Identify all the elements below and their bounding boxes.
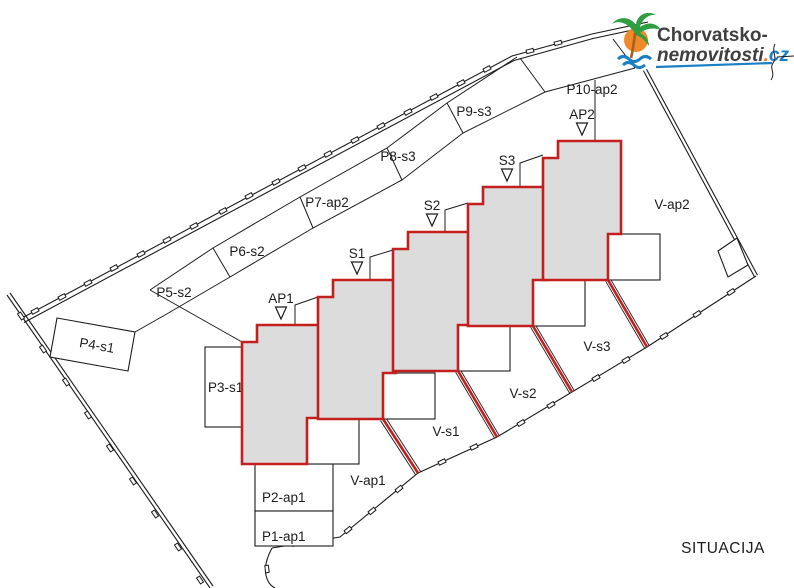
- garden-label-v-ap1: V-ap1: [350, 473, 385, 488]
- parking-stall-label-p5: P5-s2: [156, 285, 191, 300]
- logo-chorvatsko-nemovitosti: Chorvatsko- nemovitosti.cz: [612, 13, 789, 68]
- parking-rect-p1: P1-ap1: [255, 511, 333, 546]
- tick: [526, 48, 534, 53]
- division-line: [445, 203, 468, 232]
- logo-text-line1: Chorvatsko-: [657, 25, 768, 46]
- division-line: [370, 250, 393, 280]
- fence-v-s1-v-s2: [456, 370, 500, 439]
- tick: [298, 165, 306, 172]
- tick: [106, 444, 113, 452]
- stall-divider: [520, 58, 545, 92]
- wave-line: [618, 57, 651, 62]
- tick: [470, 444, 478, 450]
- division-line: [520, 155, 543, 187]
- tick: [129, 477, 136, 485]
- tick: [430, 94, 438, 101]
- unit-label-ap1: AP1: [268, 291, 294, 306]
- tick: [58, 294, 66, 301]
- tick: [190, 223, 198, 230]
- unit-label-s3: S3: [499, 153, 516, 168]
- parking-label-p3: P3-s1: [208, 380, 243, 395]
- tick: [592, 375, 600, 382]
- terrace-s1: [383, 373, 435, 419]
- parking-stall-label-p9: P9-s3: [456, 104, 491, 119]
- tick: [324, 151, 332, 158]
- parking-label-p2: P2-ap1: [262, 490, 306, 505]
- tick: [344, 526, 352, 533]
- tick: [31, 308, 39, 315]
- site-plan-page: P5-s2 P6-s2 P7-ap2 P8-s3 P9-s3 P10-ap2 P…: [0, 0, 794, 588]
- parking-stall-label-p8: P8-s3: [380, 149, 415, 164]
- parking-stall-label-p6: P6-s2: [229, 244, 264, 259]
- parking-rect-p3: P3-s1: [205, 347, 243, 427]
- parking-rect-p2: P2-ap1: [255, 464, 333, 511]
- fence-v-s2-v-s3: [531, 325, 575, 394]
- stall-divider: [213, 248, 230, 277]
- terrace-s3: [533, 280, 585, 326]
- tick: [404, 109, 412, 116]
- tick: [395, 485, 403, 492]
- garden-label-v-s3: V-s3: [583, 339, 610, 354]
- tick: [245, 193, 253, 200]
- tick: [693, 311, 701, 318]
- garden-label-v-s1: V-s1: [432, 424, 459, 439]
- tick: [483, 66, 491, 73]
- triangle-down-marker: [427, 214, 438, 226]
- drawing-title: SITUACIJA: [681, 540, 765, 557]
- tick: [727, 289, 735, 296]
- triangle-down-marker: [577, 123, 588, 135]
- parking-label-p1: P1-ap1: [262, 529, 306, 544]
- tick: [137, 251, 145, 258]
- tick: [622, 357, 630, 364]
- division-line: [295, 297, 318, 325]
- building-footprint-ap1: [242, 325, 320, 464]
- tick: [265, 565, 269, 573]
- tick: [84, 280, 92, 287]
- strip-connector: [135, 315, 165, 332]
- building-footprint-ap2: [543, 141, 621, 280]
- unit-label-ap2: AP2: [569, 107, 595, 122]
- parking-rect-p4: P4-s1: [50, 318, 135, 371]
- unit-label-s1: S1: [349, 246, 366, 261]
- tick: [517, 420, 525, 427]
- tick: [272, 179, 280, 186]
- building-footprint-s1: [318, 280, 396, 419]
- wave-line: [623, 63, 645, 68]
- small-structure-right: [718, 238, 748, 277]
- tick: [62, 378, 69, 386]
- tick: [174, 543, 181, 551]
- tick: [84, 411, 91, 419]
- tick: [39, 345, 46, 353]
- tick: [547, 402, 555, 409]
- fence-v-ap1-v-s1: [381, 417, 421, 474]
- terrace-ap2: [608, 234, 660, 280]
- palm-tree-icon: [612, 13, 661, 68]
- triangle-down-marker: [352, 262, 363, 274]
- garden-label-v-s2: V-s2: [509, 386, 536, 401]
- building-footprint-s3: [468, 187, 546, 326]
- garden-label-v-ap2: V-ap2: [654, 197, 689, 212]
- tick: [660, 333, 668, 340]
- fence-v-s3-v-ap2: [606, 279, 650, 349]
- building-unit-ap2: AP2: [543, 107, 660, 280]
- site-plan-drawing: P5-s2 P6-s2 P7-ap2 P8-s3 P9-s3 P10-ap2 P…: [0, 0, 794, 588]
- parking-stall-label-p10: P10-ap2: [566, 82, 617, 97]
- tick: [554, 40, 562, 45]
- terrace-ap1: [307, 418, 359, 464]
- terrace-s2: [458, 325, 510, 371]
- tick: [377, 123, 385, 130]
- unit-label-s2: S2: [424, 198, 441, 213]
- building-footprint-s2: [393, 232, 471, 371]
- tick: [110, 265, 118, 272]
- parking-stall-label-p7: P7-ap2: [305, 195, 349, 210]
- tick: [438, 459, 446, 465]
- triangle-down-marker: [276, 307, 287, 319]
- tick: [351, 137, 359, 144]
- tick: [163, 237, 171, 244]
- tick: [368, 507, 376, 514]
- tick: [219, 208, 227, 215]
- triangle-down-marker: [502, 169, 513, 181]
- tick: [457, 80, 465, 87]
